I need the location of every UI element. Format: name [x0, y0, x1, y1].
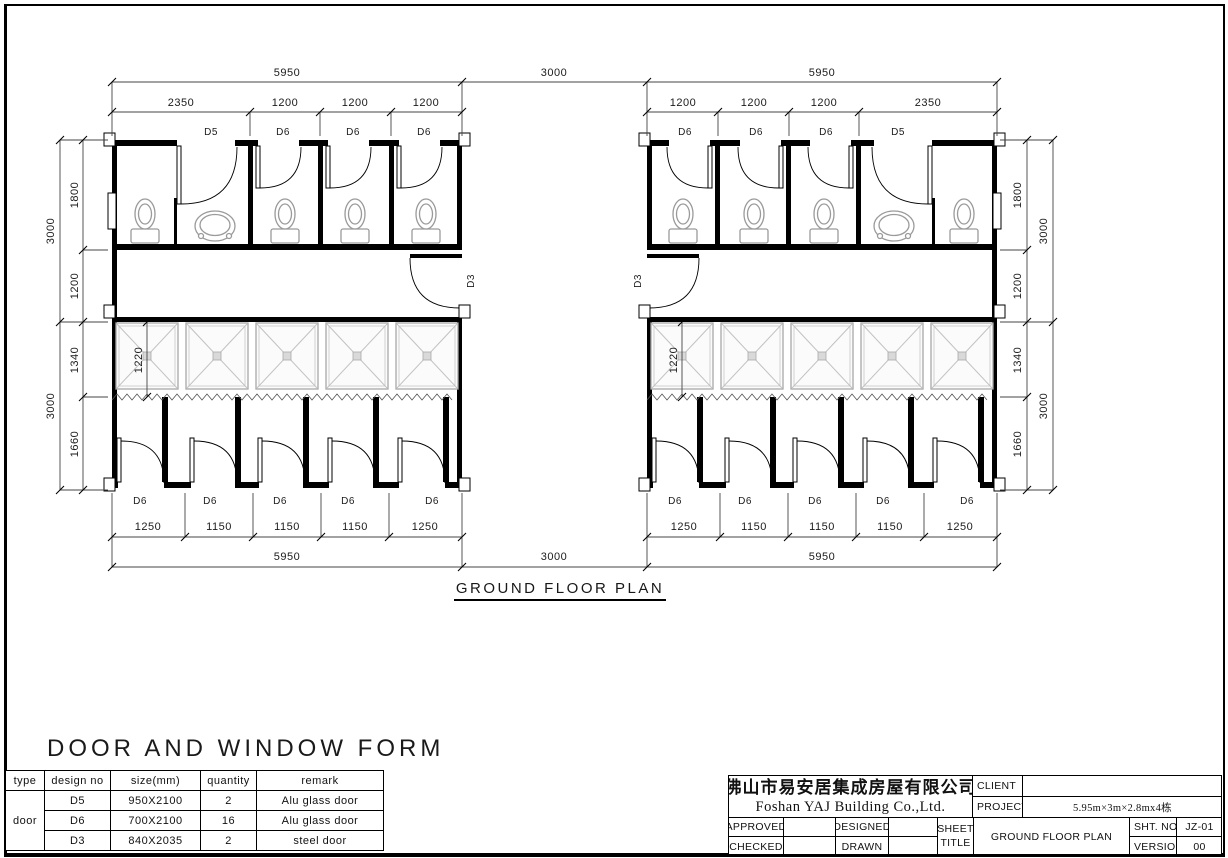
cell-remark: Alu glass door [257, 791, 384, 811]
versions-label: VERSIONS [1130, 837, 1177, 856]
approved-label: APPROVED [729, 818, 784, 837]
door-label: D6 [960, 496, 974, 507]
plan-title-text: GROUND FLOOR PLAN [454, 580, 666, 601]
dim-label: 5950 [809, 67, 835, 79]
door-window-table: type design no size(mm) quantity remark … [5, 770, 384, 851]
checked-label: CHECKED [729, 837, 784, 856]
cell-remark: steel door [257, 831, 384, 851]
dim-label: 1660 [1012, 431, 1024, 457]
plan-title: GROUND FLOOR PLAN [448, 580, 672, 601]
cell-design-no: D5 [45, 791, 111, 811]
cell-quantity: 16 [201, 811, 257, 831]
drawn-label: DRAWN [836, 837, 889, 856]
project-value: 5.95m×3m×2.8mx4栋 [1023, 797, 1222, 818]
building-right [639, 133, 1005, 491]
title-label: TITLE [940, 837, 970, 851]
door-label: D6 [749, 127, 763, 138]
cell-design-no: D3 [45, 831, 111, 851]
dim-label: 5950 [809, 551, 835, 563]
dim-label: 3000 [45, 393, 57, 419]
versions-value: 00 [1177, 837, 1222, 856]
cell-size: 950X2100 [111, 791, 201, 811]
cell-remark: Alu glass door [257, 811, 384, 831]
door-label: D6 [133, 496, 147, 507]
header-quantity: quantity [201, 771, 257, 791]
dim-label: 1200 [272, 97, 298, 109]
cell-size: 700X2100 [111, 811, 201, 831]
client-label: CLIENT [973, 776, 1023, 797]
dim-label: 1150 [809, 521, 835, 533]
dim-label: 1150 [342, 521, 368, 533]
dim-label: 1200 [741, 97, 767, 109]
door-label: D6 [276, 127, 290, 138]
door-label: D6 [273, 496, 287, 507]
dim-label: 1200 [69, 273, 81, 299]
dim-label: 1250 [135, 521, 161, 533]
door-label: D6 [678, 127, 692, 138]
table-header-row: type design no size(mm) quantity remark [6, 771, 384, 791]
sheet-title-value: GROUND FLOOR PLAN [974, 818, 1130, 856]
door-label: D6 [819, 127, 833, 138]
door-label: D6 [203, 496, 217, 507]
sheet-title-label: SHEET TITLE [938, 818, 974, 856]
dim-label: 1250 [947, 521, 973, 533]
dim-label: 1250 [412, 521, 438, 533]
header-remark: remark [257, 771, 384, 791]
dim-label: 1340 [69, 347, 81, 373]
dim-label: 1220 [133, 347, 145, 373]
dim-label: 1200 [1012, 273, 1024, 299]
dim-label: 3000 [45, 218, 57, 244]
floor-plan-drawing: 5950 3000 5950 2350 1200 1200 1200 1200 … [0, 0, 1228, 858]
title-block: 佛山市易安居集成房屋有限公司 Foshan YAJ Building Co.,L… [728, 775, 1222, 855]
dim-label: 3000 [541, 551, 567, 563]
dim-label: 5950 [274, 551, 300, 563]
table-row: D6 700X2100 16 Alu glass door [6, 811, 384, 831]
table-row: door D5 950X2100 2 Alu glass door [6, 791, 384, 811]
drawn-value [889, 837, 938, 856]
door-label: D6 [668, 496, 682, 507]
dim-label: 1150 [206, 521, 232, 533]
approved-value [784, 818, 836, 837]
dim-label: 1200 [413, 97, 439, 109]
dim-label: 1660 [69, 431, 81, 457]
cell-size: 840X2035 [111, 831, 201, 851]
client-value [1023, 776, 1222, 797]
door-label: D6 [738, 496, 752, 507]
dim-label: 1150 [741, 521, 767, 533]
cell-quantity: 2 [201, 831, 257, 851]
dim-label: 1800 [1012, 182, 1024, 208]
designed-label: DESIGNED [836, 818, 889, 837]
cell-design-no: D6 [45, 811, 111, 831]
door-label: D3 [633, 274, 644, 288]
dim-label: 1800 [69, 182, 81, 208]
dim-label: 3000 [541, 67, 567, 79]
door-label: D6 [417, 127, 431, 138]
project-label: PROJECT [973, 797, 1023, 818]
dim-label: 1220 [668, 347, 680, 373]
cell-type: door [6, 791, 45, 851]
cell-quantity: 2 [201, 791, 257, 811]
designed-value [889, 818, 938, 837]
dim-label: 2350 [168, 97, 194, 109]
header-size: size(mm) [111, 771, 201, 791]
dim-label: 1200 [811, 97, 837, 109]
door-window-form-title: DOOR AND WINDOW FORM [47, 735, 444, 763]
company-cell: 佛山市易安居集成房屋有限公司 Foshan YAJ Building Co.,L… [729, 776, 973, 818]
dim-label: 1150 [274, 521, 300, 533]
checked-value [784, 837, 836, 856]
dim-label: 1340 [1012, 347, 1024, 373]
dim-label: 2350 [915, 97, 941, 109]
sht-no-label: SHT. NO. [1130, 818, 1177, 837]
dim-label: 3000 [1038, 393, 1050, 419]
header-type: type [6, 771, 45, 791]
header-design-no: design no [45, 771, 111, 791]
dim-label: 1250 [671, 521, 697, 533]
sht-no-value: JZ-01 [1177, 818, 1222, 837]
door-label: D6 [425, 496, 439, 507]
door-label: D5 [891, 127, 905, 138]
door-label: D6 [876, 496, 890, 507]
door-label: D5 [204, 127, 218, 138]
dim-label: 1150 [877, 521, 903, 533]
building-left [104, 133, 470, 491]
dim-label: 5950 [274, 67, 300, 79]
door-label: D6 [346, 127, 360, 138]
door-label: D6 [808, 496, 822, 507]
dimension-labels: 5950 3000 5950 2350 1200 1200 1200 1200 … [45, 67, 1050, 563]
company-name-en: Foshan YAJ Building Co.,Ltd. [756, 798, 946, 816]
dim-label: 1200 [670, 97, 696, 109]
company-name-cn: 佛山市易安居集成房屋有限公司 [729, 777, 973, 798]
dim-label: 1200 [342, 97, 368, 109]
dim-label: 3000 [1038, 218, 1050, 244]
door-label: D3 [466, 274, 477, 288]
drawing-sheet: 5950 3000 5950 2350 1200 1200 1200 1200 … [0, 0, 1228, 858]
table-row: D3 840X2035 2 steel door [6, 831, 384, 851]
door-label: D6 [341, 496, 355, 507]
sheet-label: SHEET [938, 823, 974, 837]
